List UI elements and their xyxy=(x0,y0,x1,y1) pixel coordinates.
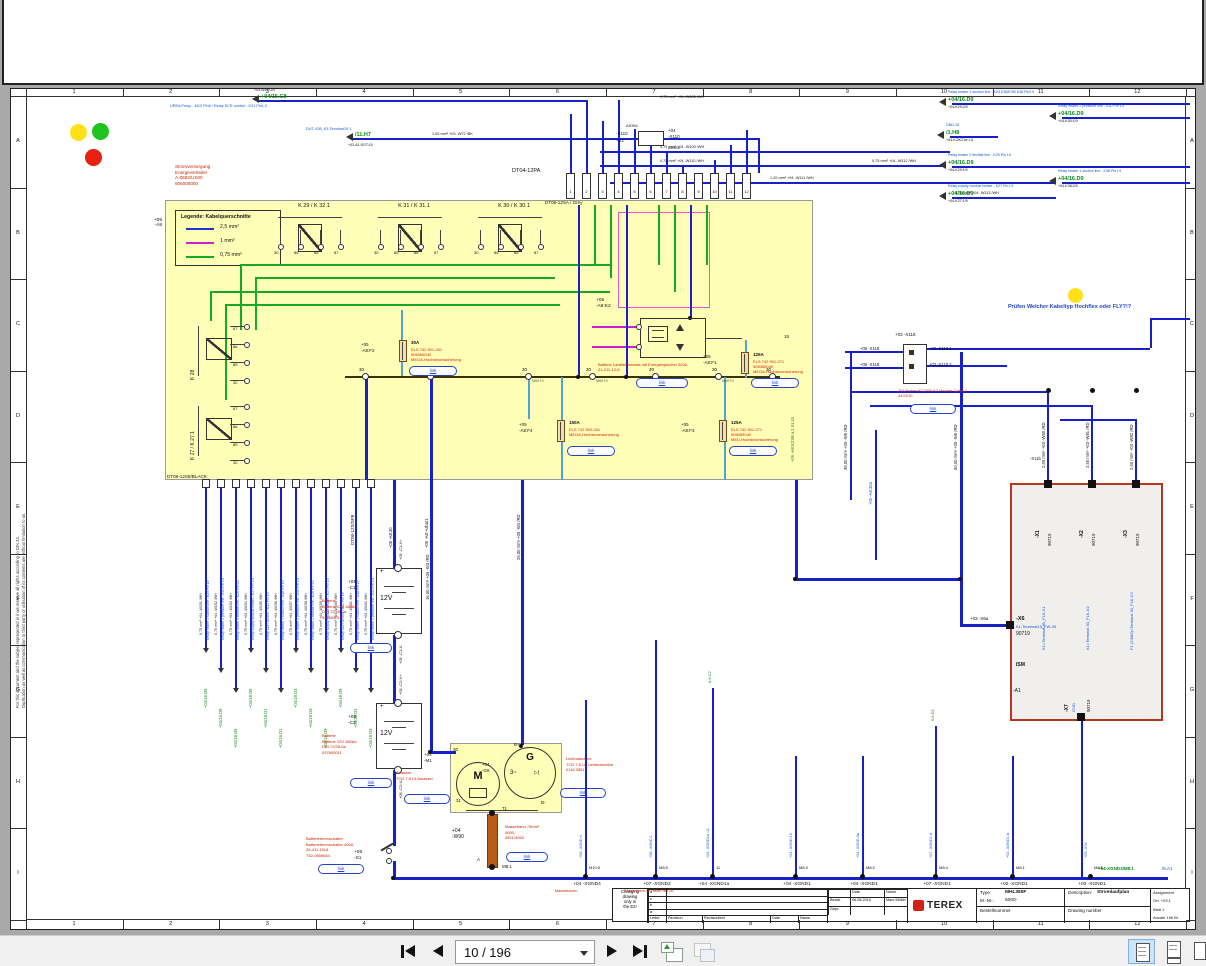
wire xyxy=(384,721,414,722)
arrow-down-icon xyxy=(278,688,284,693)
wire xyxy=(528,377,530,419)
hyperlink-oval[interactable]: link xyxy=(409,366,457,376)
tick xyxy=(219,88,220,96)
wire xyxy=(674,205,676,292)
cross-reference: +04/18.D9 xyxy=(233,729,238,748)
hyperlink-oval[interactable]: link xyxy=(404,794,450,804)
relay-pin xyxy=(244,422,250,428)
part-info: Batterietrennschalter xyxy=(306,836,343,841)
relay-pin-number: 30 xyxy=(374,250,378,255)
connector-name: -X3 xyxy=(1123,530,1129,538)
wire xyxy=(850,352,852,500)
arrow-down-icon xyxy=(203,648,209,653)
connector-pin-number: 2 xyxy=(582,189,591,194)
signal-description: Relay heater 1 suction line - K29 Pin L9 xyxy=(206,580,210,640)
hyperlink-oval[interactable]: link xyxy=(560,788,606,798)
tick xyxy=(509,88,510,96)
wire xyxy=(952,166,1190,168)
connector-pin-number: 1 xyxy=(566,189,575,194)
grid-row-label: H xyxy=(13,779,23,785)
fuse-rating: 125A xyxy=(753,352,764,357)
wire xyxy=(278,217,342,218)
module-name: ISM xyxy=(1016,662,1025,668)
mnr-label: M.-Nr.: xyxy=(980,898,994,903)
connector-pin-number: 9 xyxy=(694,189,703,194)
grid-column-label: 6 xyxy=(509,89,605,95)
grid-column-label: 5 xyxy=(413,89,509,95)
wire xyxy=(758,138,760,173)
connector-code: 90719 xyxy=(1016,631,1030,637)
bolt-label: M8:5 xyxy=(659,865,668,870)
revision-table: dcbaLetterRevisionRevisiontextDateName xyxy=(647,889,827,923)
arrow-down-icon xyxy=(368,688,374,693)
signature-table: DateNameBearb.06.08.2010Marc MüllerGepr. xyxy=(827,889,907,923)
relay-pin-number: 86 xyxy=(514,250,518,255)
wire xyxy=(255,277,257,330)
next-page-button[interactable] xyxy=(602,940,624,962)
relay-pin-number: 87 xyxy=(233,406,237,411)
connector-name: -X11b xyxy=(1030,456,1041,461)
rotated-wire-label: +03 -X7a xyxy=(1084,842,1088,858)
tick xyxy=(26,920,27,930)
check-note: Prüfen Welcher Kabeltyp Hochflex oder FL… xyxy=(1008,304,1131,310)
part-info: MEGA-Hochstromsicherung xyxy=(753,369,803,374)
titleblock-cell: 06.08.2010 xyxy=(850,897,884,906)
tick xyxy=(896,88,897,96)
wire xyxy=(724,377,726,420)
connector-pin-box xyxy=(277,479,285,488)
connector-pin-box xyxy=(262,479,270,488)
terminal-label: T1 xyxy=(502,806,507,811)
relay-pin xyxy=(438,244,444,250)
wire xyxy=(393,770,396,846)
grid-row-label: D xyxy=(1187,413,1197,419)
legend-label: 0,75 mm² xyxy=(220,252,242,258)
wire-gauge-label: 0,75 mm² +04 -W110 /WH xyxy=(660,159,704,163)
legend-tag-line: -A8 xyxy=(148,223,162,228)
grid-column-label: 6 xyxy=(509,921,605,927)
stud-label: M6KT0 xyxy=(722,379,734,383)
wire xyxy=(210,291,610,293)
relay-pin-number: 87 xyxy=(334,250,338,255)
relay-pin-number: 86 xyxy=(414,250,418,255)
tick xyxy=(10,188,26,189)
motor-letter: M xyxy=(456,770,500,782)
bolt-label: M8:3 xyxy=(799,865,808,870)
page-number-combo[interactable]: 10 / 196 xyxy=(455,940,595,964)
ground-tag: +03 -XGND1 xyxy=(1064,882,1120,887)
bestellnummer-label: Bestellnummer xyxy=(980,908,1011,913)
wire-gauge-label: 0,75 mm² +04 -W113 /WH xyxy=(955,191,999,195)
connector-pin-box xyxy=(630,173,639,199)
last-page-button[interactable] xyxy=(630,940,652,962)
connector-pin-box xyxy=(678,173,687,199)
signal-description: GND xyxy=(1071,703,1076,712)
part-info: MEGA-Hochstromsicherung xyxy=(411,357,461,362)
junction-dot xyxy=(710,874,715,879)
stud-label: M6KT0 xyxy=(532,379,544,383)
signal-description: Relay heater 1 suction line - K38 Pin L9 xyxy=(356,580,360,640)
part-info: Batterie 12V 180Ah xyxy=(322,604,357,609)
wire xyxy=(592,326,638,328)
tick xyxy=(896,920,897,930)
arrow-down-icon xyxy=(338,648,344,653)
part-info: Batterietrennschalter 400A xyxy=(306,842,353,847)
grid-column-label: 4 xyxy=(316,921,412,927)
fuse-rating: 125A xyxy=(731,420,742,425)
wire xyxy=(560,422,561,440)
titleblock-cell: Gepr. xyxy=(828,906,850,915)
arrow-down-icon xyxy=(263,668,269,673)
connector-name: -X7 xyxy=(1064,704,1070,712)
device-tag: +04 xyxy=(424,752,432,757)
signal-description: Relay heater 2 flexible line - K29 Pin L… xyxy=(948,153,1011,157)
disclaimer-text: Duplication as well as communication to … xyxy=(21,513,26,708)
wire-gauge-label: 1,20 mm² +04 -W111 /WH xyxy=(770,176,814,180)
connector-pin-number: 6 xyxy=(646,189,655,194)
legend-box: Legende: Kabelquerschnitte 2,5 mm² 1 mm²… xyxy=(175,210,281,266)
wire xyxy=(392,749,406,750)
relay-pin xyxy=(518,244,524,250)
wire xyxy=(355,488,357,668)
assignment-label: Assignment xyxy=(1153,890,1174,895)
check-dot-yellow xyxy=(1068,288,1083,303)
signal-description: F1 (X4/86)=Terminal 30_FLK-X3 xyxy=(1129,592,1134,650)
tick xyxy=(1186,88,1187,96)
hyperlink-oval[interactable]: link xyxy=(636,378,688,388)
ground-tag: +04 -XGND4 xyxy=(559,882,615,887)
device-tag: +05 xyxy=(519,422,527,427)
wire xyxy=(1062,182,1190,184)
connector-pin-box xyxy=(232,479,240,488)
wire xyxy=(845,367,903,369)
relay-name: K 28 xyxy=(190,370,196,380)
part-info: Batterie 12V 180Ah xyxy=(322,739,357,744)
relay-coil xyxy=(206,338,232,360)
signal-description: Relay heater 2 flexible line - K29 Pin L… xyxy=(236,581,240,640)
rotated-wire-label: +04 -XGND1a :11 xyxy=(706,828,710,858)
wire xyxy=(393,480,396,570)
x110-connector xyxy=(638,131,664,146)
wire-gauge-label: 0,75 mm² +04 -W105 /WH xyxy=(660,95,704,99)
device-tag: -C1 xyxy=(348,586,356,591)
device-tag: -W90 xyxy=(452,834,464,840)
connector-name: +05 -X118 xyxy=(860,346,879,351)
relay-name: K 30 / K 30.1 xyxy=(464,203,564,209)
tick xyxy=(1089,920,1090,930)
grid-row-label: I xyxy=(13,870,23,876)
part-info: MEGA-Hochstromsicherung xyxy=(569,432,619,437)
wire xyxy=(401,362,403,376)
wire xyxy=(744,354,745,372)
wire-name: +04-K29:1/9 xyxy=(948,168,968,172)
connector-name: -X6 xyxy=(1016,616,1025,622)
relay-pin-number: 30 xyxy=(274,250,278,255)
tick xyxy=(413,88,414,96)
cross-reference: +04/15.C8 xyxy=(261,94,287,100)
titleblock-cell: Name xyxy=(884,889,907,897)
part-info: Batterie xyxy=(322,733,336,738)
device-tag: -A8:F2 xyxy=(361,348,375,353)
fuse-symbol xyxy=(399,340,407,362)
cross-reference: +04/16.D9 xyxy=(203,689,208,708)
connector-name: +03 -X118.1 xyxy=(929,346,952,351)
part-info: DIN 72/28-6a xyxy=(322,744,346,749)
terminal-label: +05 -C1:X+ xyxy=(398,540,403,560)
arrow-down-icon xyxy=(218,668,224,673)
relay-pin xyxy=(478,244,484,250)
first-page-button[interactable] xyxy=(398,940,420,962)
relay-pin xyxy=(538,244,544,250)
tick xyxy=(26,88,27,96)
bolt-label: M8:2 xyxy=(866,865,875,870)
bolt-label: M8:1 xyxy=(1016,865,1025,870)
junction-dot xyxy=(1134,388,1139,393)
wire xyxy=(310,488,312,668)
wire xyxy=(586,107,588,173)
description-value: Stromlaufplan xyxy=(1097,890,1129,895)
arrow-down-icon xyxy=(293,648,299,653)
wire xyxy=(393,635,396,705)
wire xyxy=(960,352,963,582)
wire xyxy=(1150,318,1152,348)
relay-pin xyxy=(244,404,250,410)
battery-voltage: 12V xyxy=(380,595,392,602)
blatt-value: Blatt 1 xyxy=(1153,907,1164,912)
grid-row-label: A xyxy=(13,138,23,144)
hyperlink-oval[interactable]: link xyxy=(350,778,392,788)
hyperlink-oval[interactable]: link xyxy=(910,404,956,414)
connector-pin-box xyxy=(694,173,703,199)
device-tag: -A1 xyxy=(1013,688,1021,694)
wire xyxy=(682,165,684,173)
hyperlink-oval[interactable]: link xyxy=(729,446,777,456)
battery-terminal xyxy=(394,564,402,572)
wire xyxy=(393,877,1168,880)
part-info: MED-Hochstromsicherung xyxy=(731,437,778,442)
battery-voltage: 12V xyxy=(380,730,392,737)
bus-node xyxy=(715,373,722,380)
duplicate-window-icon[interactable] xyxy=(692,941,716,963)
pin-number: 31 xyxy=(456,798,461,803)
bus-node-label: 30 xyxy=(649,367,654,372)
kl15-wire-label: +05 -A8:K2:86 a.1 KL15 xyxy=(790,417,795,462)
signal-description: Relay heater 1 suction line - K38 Pin L9 xyxy=(1058,169,1121,173)
part-info: TCD 7.8 L6 Lichtmaschine xyxy=(566,762,613,767)
device-tag: +05 xyxy=(348,715,356,720)
relay-pin xyxy=(498,244,504,250)
rotated-wire-label: 25,00 mm² +05 -W4 /RD xyxy=(516,515,521,561)
detach-page-icon[interactable] xyxy=(660,941,684,963)
connector-pin xyxy=(909,364,914,369)
wire xyxy=(578,205,580,377)
legend-label: 2,5 mm² xyxy=(220,224,239,230)
relay-name: K 31 / K 31.1 xyxy=(364,203,464,209)
junction-dot xyxy=(1090,388,1095,393)
previous-page-button[interactable] xyxy=(428,940,450,962)
wire xyxy=(935,726,937,877)
rotated-wire-label: +06 -XGND:1 xyxy=(649,835,653,858)
arrow-down-icon xyxy=(323,688,329,693)
signal-description: Relay heater 2 pressure line - K30 Pin L… xyxy=(1058,104,1124,108)
tick xyxy=(1186,554,1196,555)
wire xyxy=(265,488,267,668)
red-note-line: Stromversorgung xyxy=(175,164,210,170)
connector-name: -X1 xyxy=(1035,530,1041,538)
connector-pin-number: 11 xyxy=(726,189,735,194)
fuse-rating: 150A xyxy=(569,420,580,425)
wire xyxy=(384,608,414,609)
bus-node-label: 30 xyxy=(712,367,717,372)
cross-reference: /1.H8 xyxy=(946,130,959,136)
generator-letter: G xyxy=(504,752,556,763)
relay-pin xyxy=(244,458,250,464)
wire xyxy=(795,480,798,580)
grid-row-label: C xyxy=(13,321,23,327)
x118-connector xyxy=(903,344,927,384)
wire xyxy=(927,348,1150,350)
wire xyxy=(225,304,560,306)
hyperlink-oval[interactable]: link xyxy=(350,643,392,653)
relay-pin-number: 85 xyxy=(233,442,237,447)
wire xyxy=(570,114,572,173)
wire xyxy=(626,205,628,377)
offpage-arrow-icon xyxy=(1049,112,1056,120)
cross-reference: /L6.D2 xyxy=(930,709,935,721)
connector-pin-box xyxy=(646,173,655,199)
tick xyxy=(1186,188,1196,189)
wire xyxy=(521,480,524,745)
wire xyxy=(795,578,962,581)
wire-name: +04-K2/K21a:1.6 xyxy=(946,138,973,142)
signal-description: Relay heater 2 flexible line - K29 Pin L… xyxy=(311,581,315,640)
relay-pin-number: 86 xyxy=(233,344,237,349)
fuse-rating: 30A xyxy=(411,340,419,345)
module-connector xyxy=(1044,480,1052,488)
wire xyxy=(724,442,726,480)
wire xyxy=(652,330,664,331)
change-note-line: the E2! xyxy=(613,904,647,909)
wire-name: +04-K29:2/9 xyxy=(948,105,968,109)
divider xyxy=(977,906,1150,907)
tick xyxy=(123,920,124,930)
wire-gauge-label: 0,75 mm² +04 -W155 /WH xyxy=(259,593,263,635)
fuse-symbol xyxy=(719,420,727,442)
tick xyxy=(1089,88,1090,96)
contact-icon xyxy=(676,344,684,351)
device-tag: -S1 xyxy=(354,856,361,861)
wire-name: +03 -X6a xyxy=(970,616,988,621)
signal-description: Relay SCR control - K31 Pin L9 xyxy=(266,593,270,641)
wire xyxy=(870,405,1092,407)
relay-pin xyxy=(398,244,404,250)
part-info: DIN 72/28-6a xyxy=(322,609,346,614)
hyperlink-oval[interactable]: link xyxy=(318,864,364,874)
relay-pin xyxy=(378,244,384,250)
wire-gauge-label: 0,75 mm² +04 -W161 /WH xyxy=(349,593,353,635)
wire-gauge-label: 0,75 mm² +04 -W109 /WH xyxy=(660,145,704,149)
connector-pin-box xyxy=(337,479,345,488)
pink-highlight-box xyxy=(618,212,710,308)
relay-pin-number: 30 xyxy=(474,250,478,255)
pin-number: 15 xyxy=(784,334,789,339)
wire xyxy=(714,160,716,173)
wire xyxy=(478,217,542,218)
connector-pin-box xyxy=(367,479,375,488)
connector-pin-box xyxy=(598,173,607,199)
wire xyxy=(592,346,638,348)
relay-pin xyxy=(244,342,250,348)
cross-reference: +04/16.D9 xyxy=(948,160,974,166)
arrow-down-icon xyxy=(248,648,254,653)
signal-description: Relay supply module heater - K27 Pin L9 xyxy=(251,578,255,640)
signal-description: K1=Terminal 30_FLK-X2 xyxy=(1085,606,1090,650)
ground-tag: +04 -XGND1 xyxy=(769,882,825,887)
wire xyxy=(706,338,742,339)
tick xyxy=(316,88,317,96)
signal-description: Relay supply module heater - K27 Pin L9 xyxy=(948,184,1013,188)
hyperlink-oval[interactable]: link xyxy=(751,378,799,388)
terminal-label: +05 -C2:X- xyxy=(398,780,403,799)
relay-pin-number: 30 xyxy=(233,460,237,465)
wire-gauge-label: 0,75 mm² +04 -W157 /WH xyxy=(289,593,293,635)
hyperlink-oval[interactable]: link xyxy=(567,446,615,456)
layout-two-page-button[interactable] xyxy=(1192,939,1206,964)
connector-pin-number: 12 xyxy=(742,189,751,194)
rotated-wire-label: +04 -XGND:10 xyxy=(789,833,793,858)
connector-name: DT06-12S/SP8 xyxy=(350,515,355,545)
part-info: 537800011 xyxy=(322,615,342,620)
connector-pin-box xyxy=(614,173,623,199)
wire xyxy=(392,727,406,728)
grid-column-label: 11 xyxy=(993,921,1089,927)
rotated-wire-label: +02 -XGND1:b xyxy=(1006,833,1010,858)
tick xyxy=(1186,279,1196,280)
hyperlink-oval[interactable]: link xyxy=(506,852,548,862)
wire xyxy=(365,377,368,480)
connector-pin-number: 10 xyxy=(710,189,719,194)
tick xyxy=(10,737,26,738)
fuse-symbol xyxy=(741,352,749,374)
wire xyxy=(210,291,212,321)
wire xyxy=(690,205,692,318)
arrow-down-icon xyxy=(353,668,359,673)
red-note: Stromversorgung Energieverteiler A-0682/… xyxy=(175,164,210,186)
cross-reference: +04/19.D3 xyxy=(368,729,373,748)
junction-dot xyxy=(793,874,798,879)
grid-column-label: 9 xyxy=(799,89,895,95)
red-note-line: 506000000 xyxy=(175,181,210,187)
drawing-number-label: Drawing number xyxy=(1068,908,1102,913)
grid-row-label: C xyxy=(1187,321,1197,327)
wire-gauge-label: 1,00 mm² +03 -W72 /BK xyxy=(432,132,473,136)
wire-gauge-label: 0,75 mm² +04 -W154 /WH xyxy=(244,593,248,635)
status-dot-red xyxy=(85,149,102,166)
layout-continuous-button[interactable] xyxy=(1160,939,1187,964)
title-block: Changing drawing only in the E2! dcbaLet… xyxy=(612,888,1190,922)
layout-single-page-button[interactable] xyxy=(1128,939,1155,964)
wire-name: +04-K38:2/9 xyxy=(1058,184,1078,188)
wire xyxy=(392,614,406,615)
tick xyxy=(1186,920,1187,930)
junction-dot xyxy=(624,375,628,379)
three-phase-label: 3~ xyxy=(510,770,517,776)
relay-pin xyxy=(278,244,284,250)
connector-pin-box xyxy=(307,479,315,488)
relay-pin xyxy=(244,360,250,366)
cross-reference: +04-XGND3/M8.1 xyxy=(1098,866,1134,871)
anzahl-value: Anzahl 196 Bl. xyxy=(1153,915,1179,920)
